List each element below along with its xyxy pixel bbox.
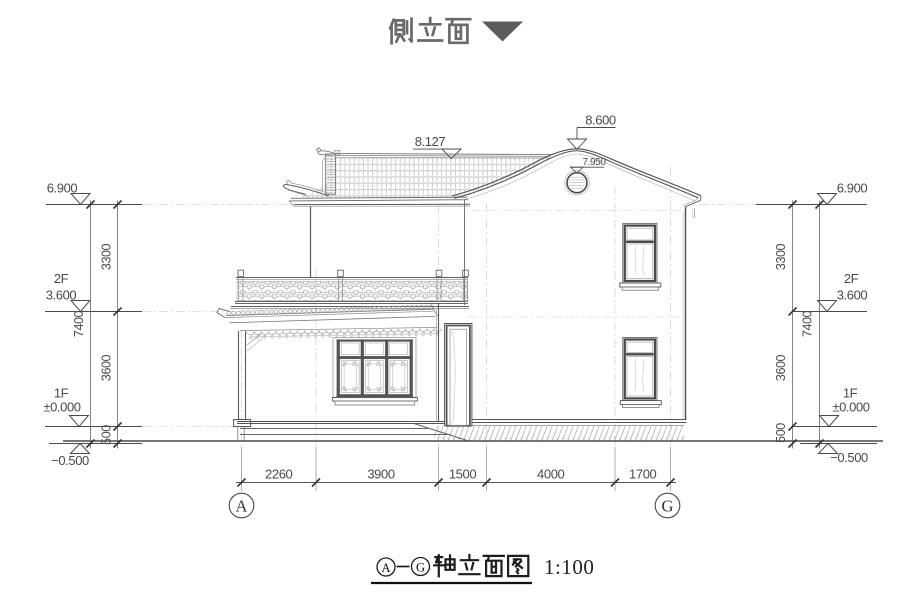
svg-text:G: G — [662, 497, 674, 516]
svg-text:7400: 7400 — [72, 310, 86, 337]
svg-text:G: G — [416, 561, 425, 575]
svg-text:7400: 7400 — [801, 310, 815, 337]
svg-text:2260: 2260 — [265, 467, 292, 482]
svg-text:500: 500 — [774, 423, 788, 443]
svg-text:8.127: 8.127 — [415, 134, 446, 149]
svg-text:4000: 4000 — [537, 467, 564, 482]
svg-text:1:100: 1:100 — [544, 555, 594, 579]
svg-text:2F: 2F — [844, 271, 859, 286]
svg-text:1F: 1F — [54, 386, 69, 401]
svg-text:3300: 3300 — [774, 243, 788, 270]
svg-text:1F: 1F — [843, 386, 858, 401]
svg-text:3600: 3600 — [100, 354, 114, 381]
svg-text:7.950: 7.950 — [582, 157, 606, 168]
svg-text:6.900: 6.900 — [837, 181, 868, 196]
svg-text:±0.000: ±0.000 — [43, 400, 80, 415]
svg-text:−0.500: −0.500 — [830, 450, 868, 465]
svg-text:1500: 1500 — [449, 467, 476, 482]
svg-text:3300: 3300 — [100, 243, 114, 270]
svg-text:−0.500: −0.500 — [51, 453, 89, 468]
svg-text:3.600: 3.600 — [837, 288, 868, 303]
svg-text:A: A — [381, 561, 390, 575]
svg-text:A: A — [236, 497, 248, 516]
svg-text:1700: 1700 — [629, 467, 656, 482]
svg-text:500: 500 — [100, 425, 114, 445]
svg-text:3600: 3600 — [774, 354, 788, 381]
svg-text:2F: 2F — [54, 271, 69, 286]
svg-text:±0.000: ±0.000 — [832, 400, 869, 415]
svg-text:8.600: 8.600 — [585, 113, 616, 128]
svg-text:3900: 3900 — [367, 467, 394, 482]
